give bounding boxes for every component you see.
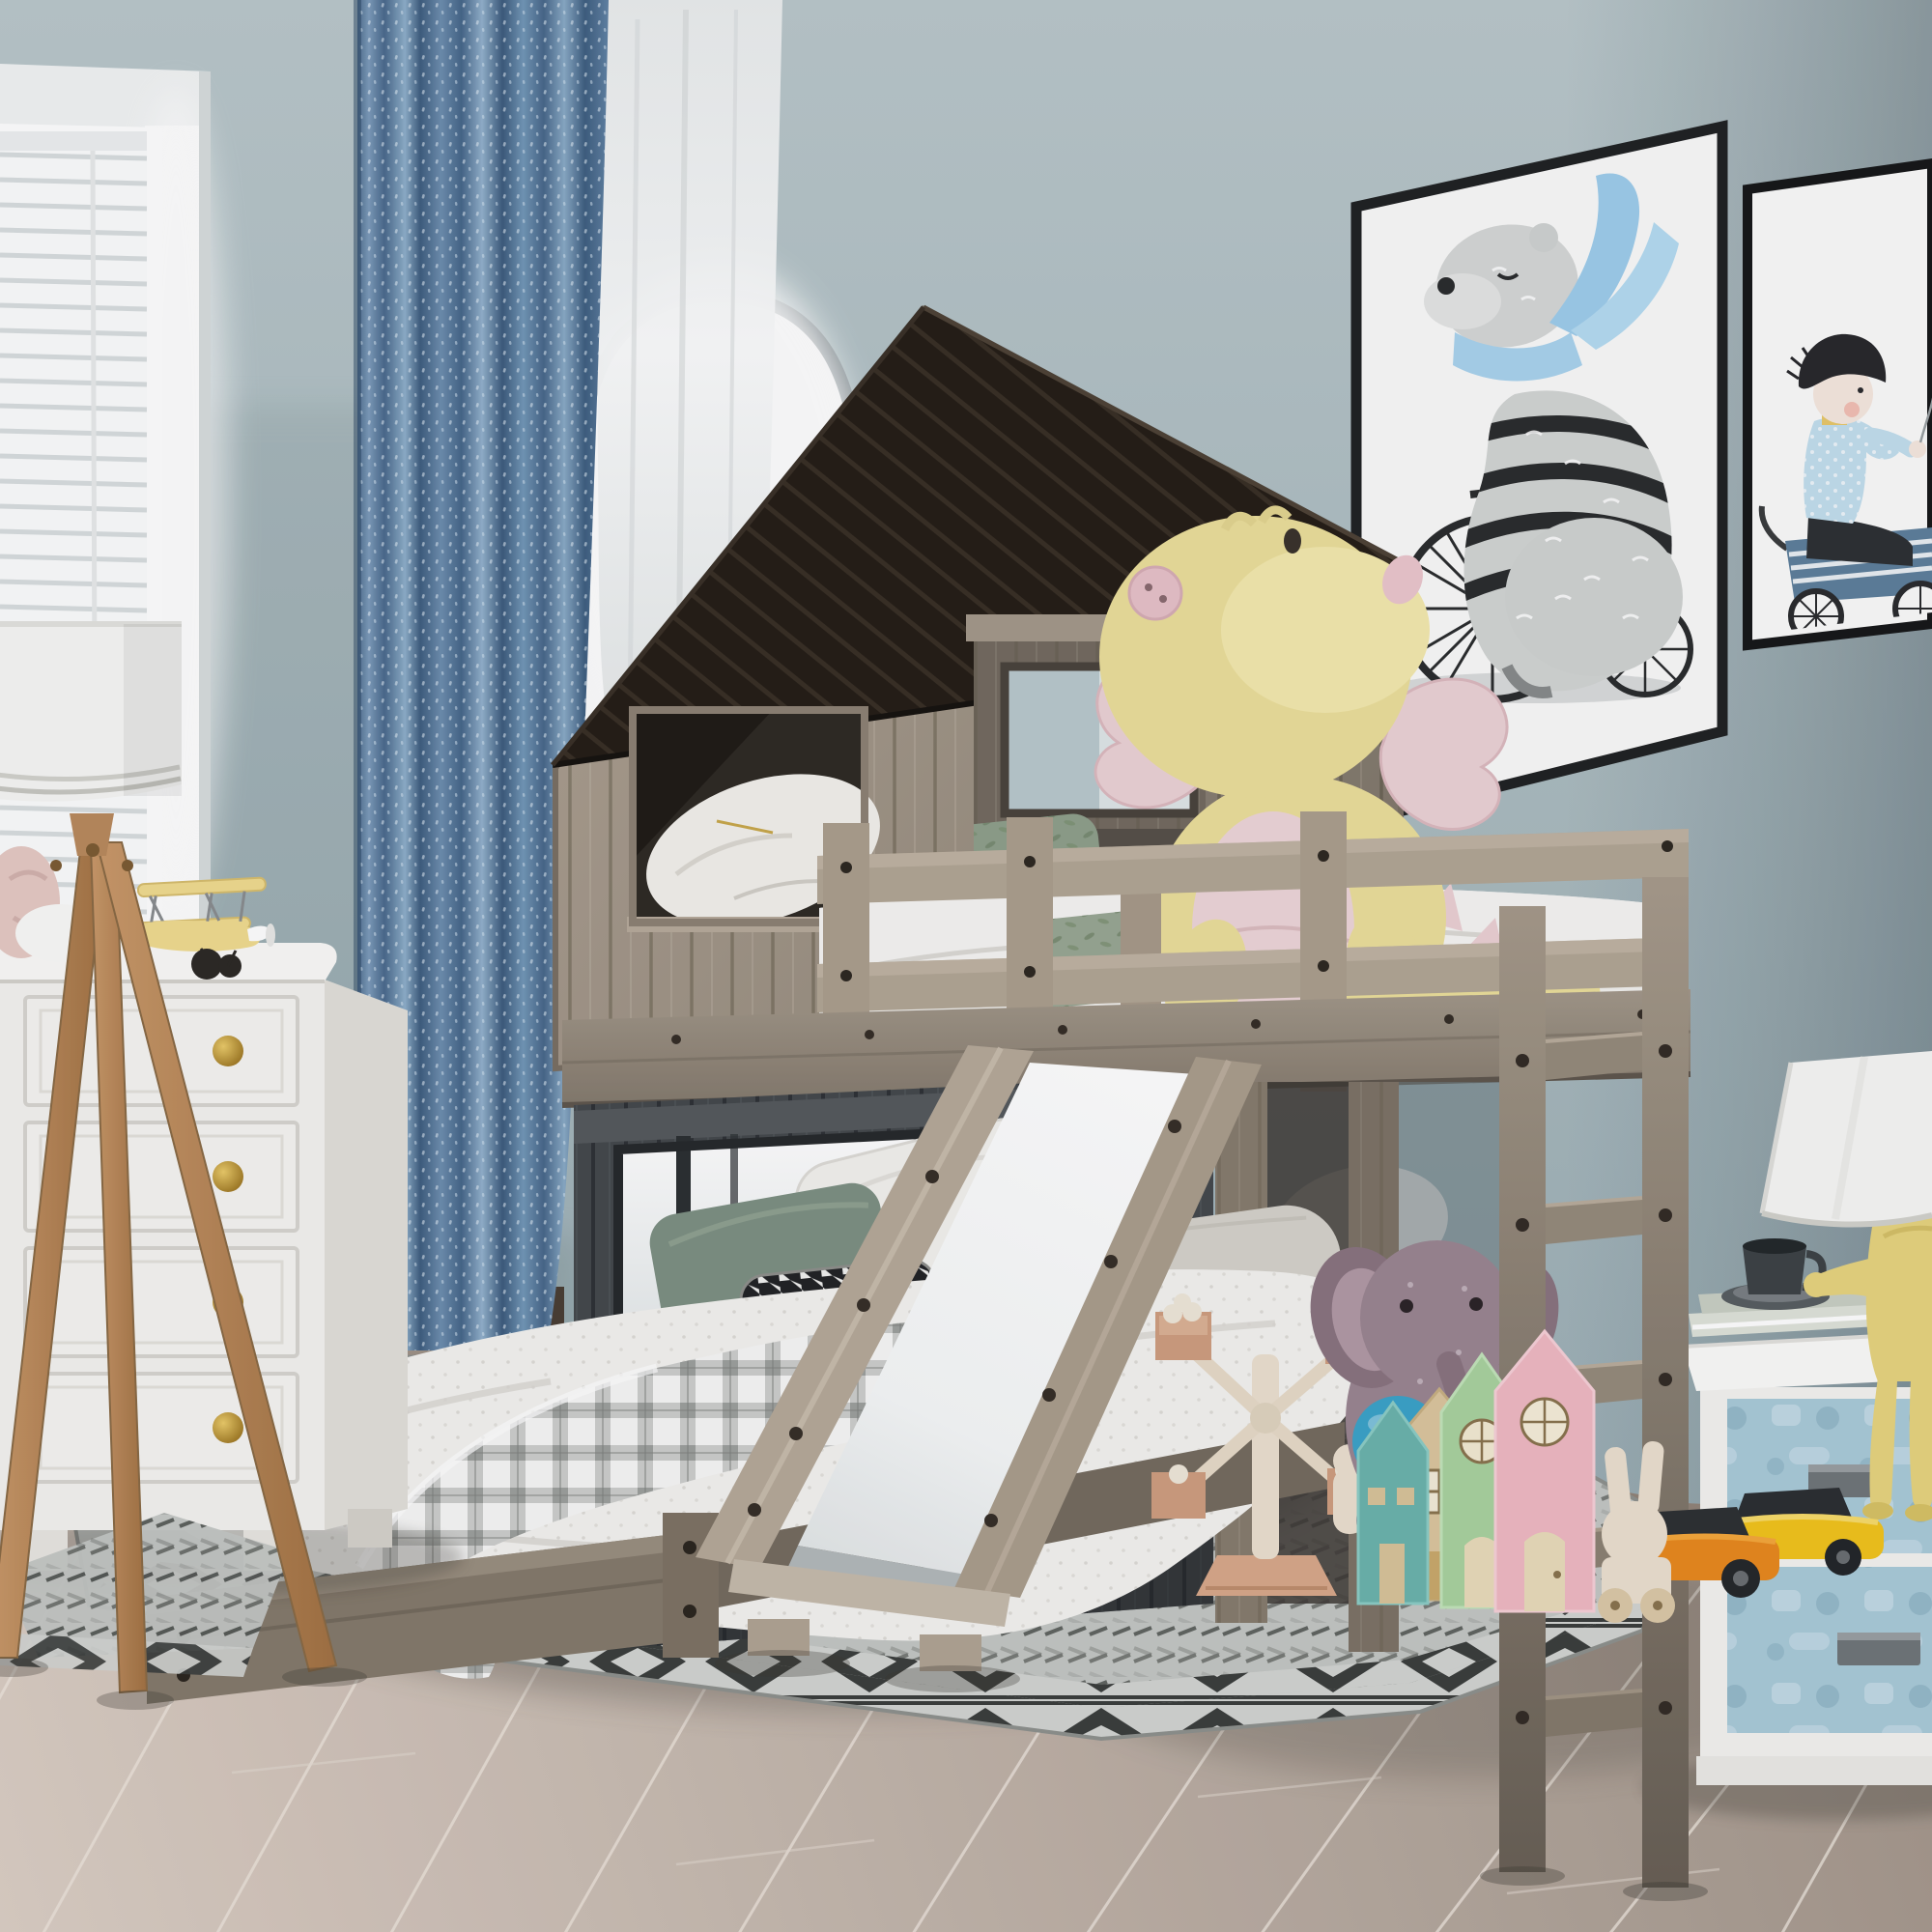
bedroom-photo <box>0 0 1932 1932</box>
vignette <box>0 0 1932 1932</box>
